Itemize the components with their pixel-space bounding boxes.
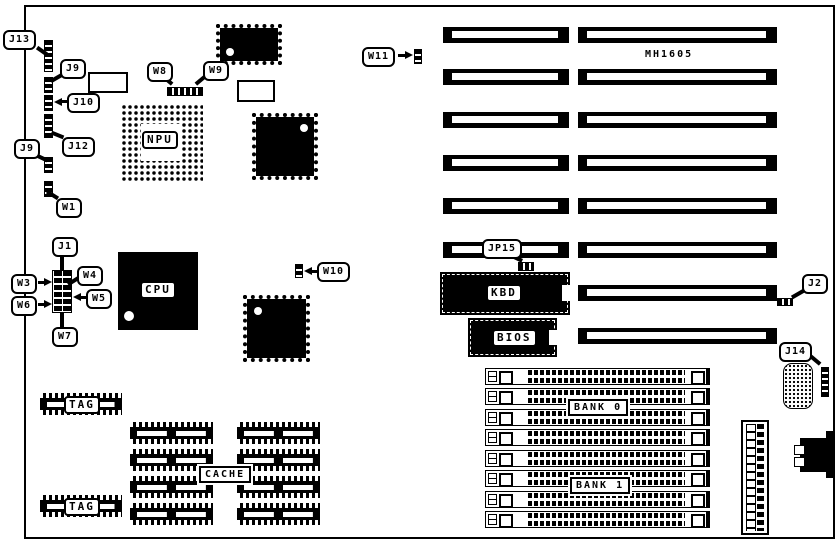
npu-label: NPU xyxy=(142,131,178,149)
cache-socket-8 xyxy=(237,503,320,525)
isa-slot-6-right xyxy=(578,242,777,258)
simm-clip-left xyxy=(499,432,513,446)
motherboard-layout-diagram: MH1605 NPU CPU KBD BIOS TAG TAG xyxy=(0,0,839,547)
bank0-label: BANK 0 xyxy=(568,399,628,416)
simm-end-bar xyxy=(706,492,709,507)
keyboard-connector-tab xyxy=(826,431,834,478)
simm-end-bar xyxy=(706,369,709,384)
jumper-header-w8-w9 xyxy=(167,87,203,96)
jumper-w11 xyxy=(414,49,422,64)
simm-end-detail xyxy=(488,458,497,464)
simm-clip-left xyxy=(499,391,513,405)
cpu-label: CPU xyxy=(140,281,176,299)
isa-slot-3-right xyxy=(578,112,777,128)
tag-top-label: TAG xyxy=(64,396,100,414)
cache-socket-7 xyxy=(130,503,213,525)
simm-pins xyxy=(528,431,685,444)
power-connector xyxy=(741,420,769,535)
isa-slot-opening xyxy=(587,73,766,80)
callout-j9-left: J9 xyxy=(14,139,40,159)
callout-w1: W1 xyxy=(56,198,82,218)
callout-j12: J12 xyxy=(62,137,95,157)
callout-jp15: JP15 xyxy=(482,239,522,259)
simm-end-bar xyxy=(706,512,709,527)
qfp-chip-lower xyxy=(243,295,310,362)
keyboard-connector-pin xyxy=(794,457,805,467)
arrowhead xyxy=(405,51,413,59)
simm-end-detail xyxy=(488,437,497,443)
pin1-dot xyxy=(226,48,234,56)
simm-clip-left xyxy=(499,514,513,528)
pin1-dot xyxy=(254,307,262,315)
simm-socket-5 xyxy=(485,450,710,467)
isa-slot-opening xyxy=(452,202,558,209)
simm-pins xyxy=(528,493,685,506)
simm-end-detail xyxy=(488,478,497,484)
isa-slot-opening xyxy=(452,73,558,80)
isa-slot-opening xyxy=(452,116,558,123)
power-pin-column xyxy=(746,424,756,531)
isa-slot-2-left xyxy=(443,69,569,85)
isa-slot-2-right xyxy=(578,69,777,85)
tag-bottom-label: TAG xyxy=(64,498,100,516)
simm-clip-right xyxy=(691,494,705,508)
pointer-line xyxy=(60,312,64,328)
simm-clip-left xyxy=(499,412,513,426)
simm-socket-4 xyxy=(485,429,710,446)
isa-slot-opening xyxy=(587,246,766,253)
bank1-label: BANK 1 xyxy=(570,477,630,494)
simm-clip-right xyxy=(691,453,705,467)
isa-slot-opening xyxy=(587,31,766,38)
bios-label: BIOS xyxy=(492,329,537,347)
callout-j1: J1 xyxy=(52,237,78,257)
callout-w5: W5 xyxy=(86,289,112,309)
cache-label: CACHE xyxy=(199,466,251,483)
callout-j10: J10 xyxy=(67,93,100,113)
simm-end-bar xyxy=(706,410,709,425)
simm-clip-left xyxy=(499,453,513,467)
simm-end-bar xyxy=(706,451,709,466)
callout-w10: W10 xyxy=(317,262,350,282)
jumper-w10 xyxy=(295,264,303,278)
simm-clip-right xyxy=(691,371,705,385)
pin1-dot xyxy=(300,124,308,132)
callout-w11: W11 xyxy=(362,47,395,67)
isa-slot-opening xyxy=(587,202,766,209)
callout-w6: W6 xyxy=(11,296,37,316)
callout-w3: W3 xyxy=(11,274,37,294)
isa-slot-4-right xyxy=(578,155,777,171)
simm-clip-left xyxy=(499,494,513,508)
chip-notch xyxy=(562,285,570,301)
simm-pins xyxy=(528,513,685,526)
isa-slot-opening xyxy=(452,159,558,166)
callout-w8: W8 xyxy=(147,62,173,82)
simm-end-detail xyxy=(488,376,497,382)
isa-slot-opening xyxy=(587,289,766,296)
callout-j14: J14 xyxy=(779,342,812,362)
simm-end-bar xyxy=(706,430,709,445)
jumper-jp15 xyxy=(518,262,534,271)
board-part-number: MH1605 xyxy=(645,49,693,60)
isa-slot-1-left xyxy=(443,27,569,43)
isa-slot-8-right xyxy=(578,328,777,344)
cache-socket-1 xyxy=(130,422,213,444)
simm-clip-right xyxy=(691,391,705,405)
simm-end-bar xyxy=(706,471,709,486)
arrowhead xyxy=(44,278,52,286)
simm-pins xyxy=(528,452,685,465)
kbd-label: KBD xyxy=(486,284,522,302)
pin-header-j14 xyxy=(821,367,829,397)
isa-slot-opening xyxy=(452,31,558,38)
callout-j9-top: J9 xyxy=(60,59,86,79)
chip-notch xyxy=(549,330,557,345)
simm-clip-left xyxy=(499,371,513,385)
qfp-chip-middle xyxy=(252,113,318,180)
isa-slot-opening xyxy=(587,116,766,123)
simm-socket-1 xyxy=(485,368,710,385)
isa-slot-opening xyxy=(587,332,766,339)
simm-end-bar xyxy=(706,389,709,404)
simm-end-detail xyxy=(488,396,497,402)
simm-clip-right xyxy=(691,412,705,426)
callout-j2: J2 xyxy=(802,274,828,294)
pin1-dot xyxy=(124,311,134,321)
simm-clip-right xyxy=(691,514,705,528)
pin-header-j10 xyxy=(44,95,53,111)
cache-socket-2 xyxy=(237,422,320,444)
simm-clip-right xyxy=(691,432,705,446)
oscillator-1 xyxy=(88,72,128,93)
callout-j13: J13 xyxy=(3,30,36,50)
simm-pins xyxy=(528,370,685,383)
simm-clip-right xyxy=(691,473,705,487)
arrowhead xyxy=(44,300,52,308)
callout-w7: W7 xyxy=(52,327,78,347)
din-connector xyxy=(783,363,813,409)
isa-slot-3-left xyxy=(443,112,569,128)
simm-end-detail xyxy=(488,417,497,423)
isa-slot-4-left xyxy=(443,155,569,171)
power-pin-column xyxy=(757,424,764,531)
isa-slot-1-right xyxy=(578,27,777,43)
qfp-chip-top xyxy=(216,24,282,65)
callout-w9: W9 xyxy=(203,61,229,81)
simm-clip-left xyxy=(499,473,513,487)
jumper-j2 xyxy=(777,298,793,306)
simm-end-detail xyxy=(488,519,497,525)
isa-slot-opening xyxy=(587,159,766,166)
callout-w4: W4 xyxy=(77,266,103,286)
simm-end-detail xyxy=(488,499,497,505)
isa-slot-5-left xyxy=(443,198,569,214)
oscillator-2 xyxy=(237,80,275,102)
jumper-block-j1 xyxy=(52,270,72,313)
simm-socket-8 xyxy=(485,511,710,528)
isa-slot-7-right xyxy=(578,285,777,301)
isa-slot-5-right xyxy=(578,198,777,214)
keyboard-connector-pin xyxy=(794,445,805,455)
